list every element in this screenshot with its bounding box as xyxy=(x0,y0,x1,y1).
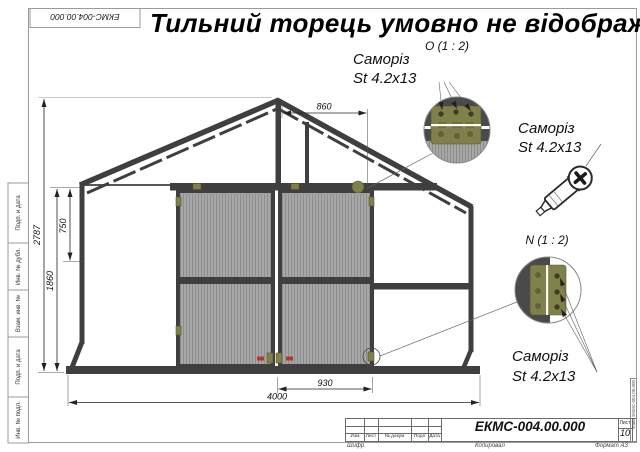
left-door-leaf xyxy=(178,192,273,367)
doc-number: ЕКМС-004.00.000 xyxy=(442,419,618,443)
dim-total-height: 2787 xyxy=(32,224,42,246)
side-cell-label: Подп. и дата xyxy=(16,349,22,385)
hinge-icon xyxy=(291,184,299,190)
corner-stamp-text: ЕКМС-004.00.000 xyxy=(50,12,120,22)
detail-view-n: N (1 : 2) Саморіз St 4.2x13 xyxy=(380,233,597,385)
footer-copied: Копировал xyxy=(475,443,505,449)
footer-code: Шифр xyxy=(347,443,364,449)
ridge-post xyxy=(276,100,282,185)
door-header-beam xyxy=(170,183,437,191)
hinge-icon xyxy=(176,326,181,335)
roof-strut xyxy=(305,122,309,184)
door-handle-icon xyxy=(257,357,264,361)
right-bay-girt xyxy=(373,283,472,290)
hinge-icon xyxy=(176,197,181,206)
screw-icon xyxy=(531,162,597,222)
drawing-canvas: ЕКМС-004.00.000 Подп. и дата Инв. № дубл… xyxy=(0,0,640,452)
hinge-icon xyxy=(368,352,374,361)
latch-icon xyxy=(276,353,282,363)
drawing-sheet: ЕКМС-004.00.000 Подп. и дата Инв. № дубл… xyxy=(0,0,640,452)
footer-format: Формат А3 xyxy=(595,443,628,449)
side-cell-label: Инв. № подл. xyxy=(15,401,22,439)
side-cell-label: Взам. инв. № xyxy=(15,295,22,332)
right-door-leaf xyxy=(280,192,372,367)
file-strip: Файл ЕКМС-004.00.000 xyxy=(630,378,637,442)
dim-door-width: 930 xyxy=(317,378,332,388)
tb-col-data: Дата xyxy=(428,434,441,439)
door-handle-icon xyxy=(286,357,293,361)
side-column-strip: Подп. и дата Инв. № дубл. Взам. инв. № П… xyxy=(8,183,29,443)
screw-callout-3-line1: Саморіз xyxy=(512,348,569,365)
screw-callout-2-line2: St 4.2x13 xyxy=(518,139,582,156)
side-cell-label: Инв. № дубл. xyxy=(15,248,22,285)
drawing-title: Тильний торець умовно не відображ xyxy=(150,9,640,39)
screw-callout-2: Саморіз St 4.2x13 xyxy=(518,120,601,222)
title-block: Изм Лист № докум Подп Дата ЕКМС-004.00.0… xyxy=(345,418,637,442)
dim-total-width: 4000 xyxy=(267,392,287,402)
dim-ridge-offset: 860 xyxy=(316,102,331,112)
left-wall-post xyxy=(71,184,82,370)
detail-n-label: N (1 : 2) xyxy=(525,233,568,247)
file-strip-label: Файл ЕКМС-004.00.000 xyxy=(631,380,636,429)
detail-view-o: О (1 : 2) Саморіз St 4.2x13 xyxy=(353,39,494,189)
tb-col-list: Лист xyxy=(364,434,378,439)
screw-callout-1-line1: Саморіз xyxy=(353,51,410,68)
tb-col-izm: Изм xyxy=(346,434,364,439)
latch-icon xyxy=(267,353,273,363)
side-cell-label: Подп. и дата xyxy=(16,195,22,231)
screw-callout-1-line2: St 4.2x13 xyxy=(353,70,417,87)
tb-col-podp: Подп xyxy=(411,434,428,439)
screw-callout-2-line1: Саморіз xyxy=(518,120,575,137)
greenhouse-end-frame xyxy=(66,100,480,374)
hinge-icon xyxy=(193,184,201,190)
detail-o-label: О (1 : 2) xyxy=(425,39,469,53)
right-door-midrail xyxy=(280,277,372,284)
tb-col-docum: № докум xyxy=(378,434,411,439)
dim-door-height: 1860 xyxy=(45,271,55,291)
hinge-icon xyxy=(369,197,374,206)
detail-o-source-marker xyxy=(352,181,364,193)
screw-callout-3-line2: St 4.2x13 xyxy=(512,368,576,385)
left-door-midrail xyxy=(178,277,273,284)
dim-upper-height: 750 xyxy=(58,218,68,233)
